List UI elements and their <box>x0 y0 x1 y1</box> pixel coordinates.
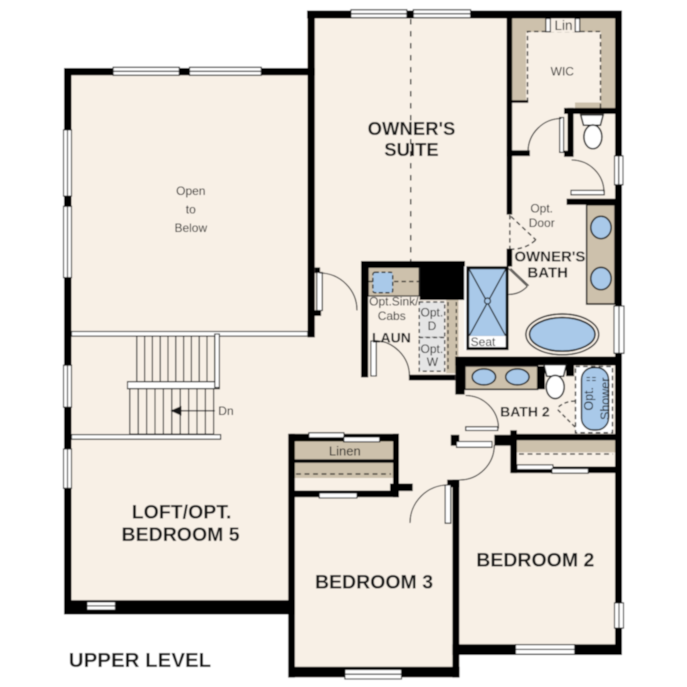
svg-text:Door: Door <box>529 216 555 230</box>
svg-text:UPPER LEVEL: UPPER LEVEL <box>69 649 211 672</box>
svg-text:Cabs: Cabs <box>378 309 406 323</box>
svg-text:BATH 2: BATH 2 <box>500 404 550 420</box>
svg-text:BATH: BATH <box>527 264 568 281</box>
svg-text:Shower: Shower <box>598 378 612 420</box>
svg-text:Open: Open <box>176 184 205 198</box>
svg-text:Linen: Linen <box>329 443 361 458</box>
svg-text:BEDROOM 5: BEDROOM 5 <box>122 524 240 546</box>
svg-text:BEDROOM 3: BEDROOM 3 <box>315 572 433 594</box>
svg-text:Opt.: Opt. <box>582 387 596 411</box>
svg-text:OWNER'S: OWNER'S <box>368 118 456 139</box>
svg-text:OWNER'S: OWNER'S <box>514 249 585 266</box>
svg-text:BEDROOM 2: BEDROOM 2 <box>476 550 594 572</box>
svg-text:Opt.: Opt. <box>530 202 553 216</box>
svg-text:WIC: WIC <box>551 65 575 79</box>
svg-text:Lin: Lin <box>554 18 572 33</box>
svg-text:LOFT/OPT.: LOFT/OPT. <box>132 502 232 524</box>
svg-text:Seat: Seat <box>471 335 496 349</box>
svg-text:SUITE: SUITE <box>384 139 438 160</box>
svg-text:Opt.: Opt. <box>421 306 444 320</box>
svg-text:LAUN: LAUN <box>372 330 411 346</box>
svg-text:Below: Below <box>174 221 207 235</box>
svg-text:D: D <box>428 319 437 333</box>
svg-text:Opt.Sink/: Opt.Sink/ <box>369 295 419 309</box>
svg-text:W: W <box>427 355 439 369</box>
svg-text:to: to <box>186 203 196 217</box>
svg-text:Dn: Dn <box>218 404 233 418</box>
